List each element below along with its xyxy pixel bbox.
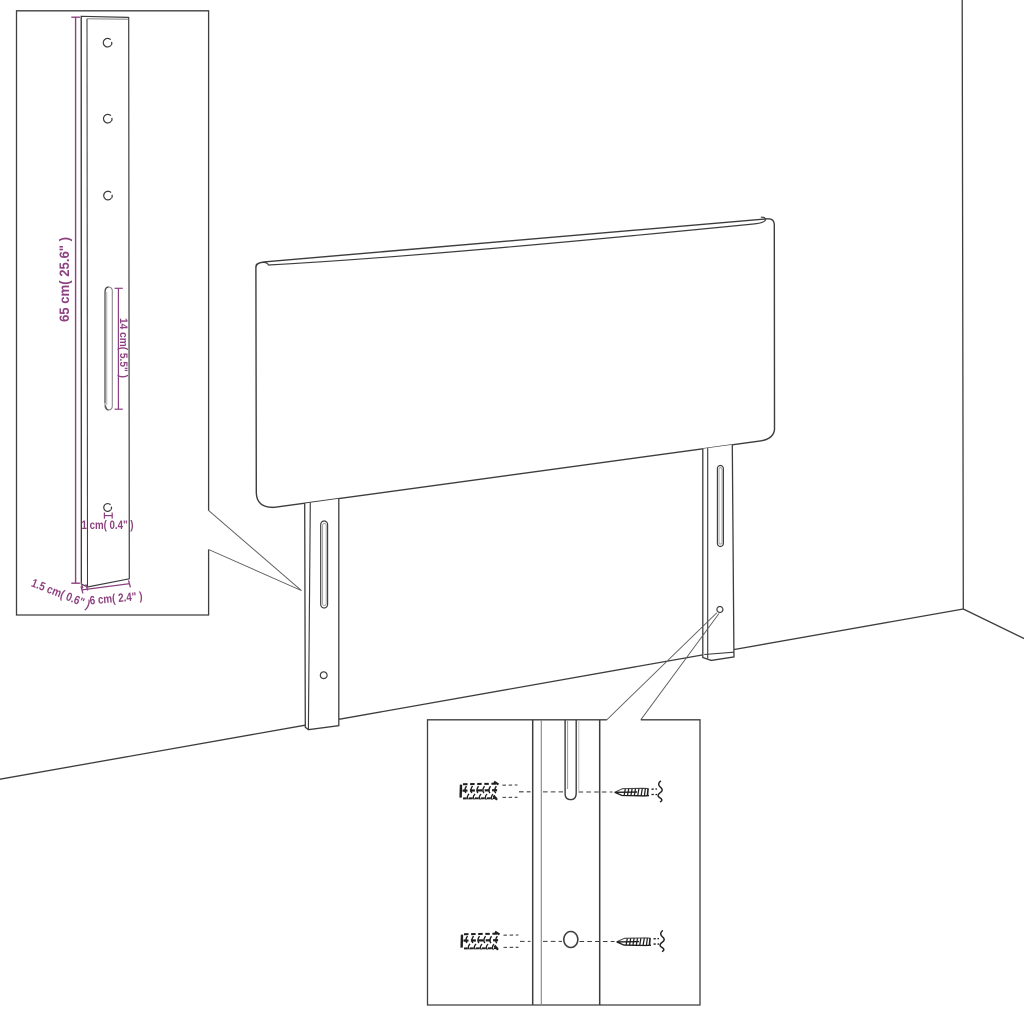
svg-text:1 cm( 0.4" ): 1 cm( 0.4" )	[82, 518, 134, 532]
svg-text:14 cm( 5.5" ): 14 cm( 5.5" )	[117, 318, 129, 378]
svg-text:65 cm( 25.6" ): 65 cm( 25.6" )	[57, 237, 72, 322]
